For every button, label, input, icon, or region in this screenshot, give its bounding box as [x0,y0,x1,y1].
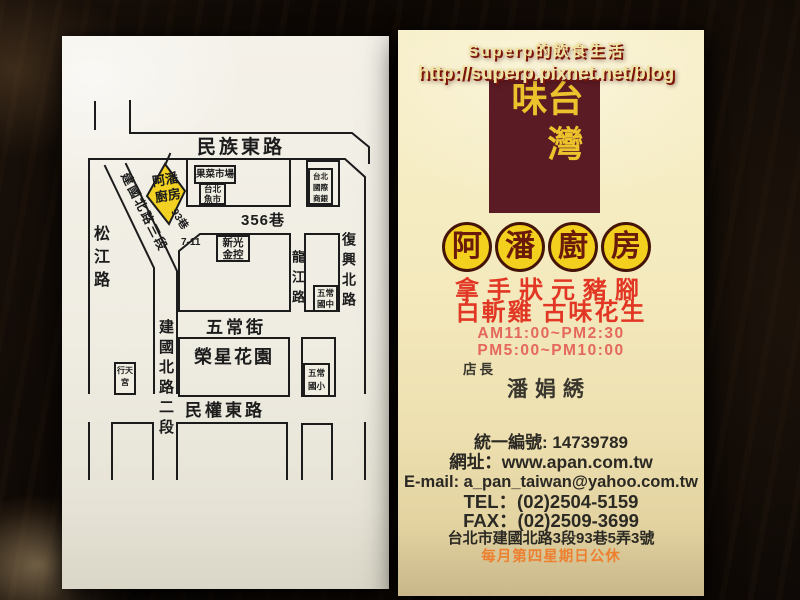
photo-of-business-cards: { "watermark": { "line1": "Superp的飲食生活",… [0,0,800,600]
junior-high-line1: 五常 [314,288,337,299]
shinkong-line2: 金控 [217,249,249,261]
fax: FAX：(02)2509-3699 [463,512,639,531]
temple-line1: 行天 [115,365,135,377]
street-fuxing-n-rd: 復興北路 [342,232,356,312]
fish-market-label: 台北 魚市 [200,185,225,204]
store-name-char4: 房 [611,232,641,262]
shinkong-label: 新光 金控 [217,237,249,261]
store-name-seal-4: 房 [601,222,651,272]
temple-line2: 宮 [115,377,135,389]
junior-high-label: 五常 國中 [314,288,337,310]
tax-id: 統一編號: 14739789 [474,434,628,451]
store-name-char3: 廚 [558,232,588,262]
store-name-seal-2: 潘 [495,222,545,272]
hours-line1: AM11:00~PM2:30 [477,326,624,342]
brand-text-taiwan-flavor: 台灣味 [509,80,581,213]
bank-line2: 國際 [309,182,332,193]
street-minquan-e-rd: 民權東路 [185,402,265,419]
manager-name: 潘娟綉 [507,379,591,400]
map-card: 民族東路 松江路 建國北路三段 建國北路二段 356巷 93巷 龍江路 復興北路… [62,36,389,589]
store-name-seal-1: 阿 [442,222,492,272]
temple-label: 行天 宮 [115,365,135,389]
fish-market-line2: 魚市 [200,195,225,205]
park-label: 榮星花園 [179,348,289,366]
elementary-label: 五常 國小 [304,367,329,393]
hours-line2: PM5:00~PM10:00 [477,343,624,359]
junior-high-line2: 國中 [314,299,337,310]
bank-line3: 商銀 [309,193,332,204]
store-name-char1: 阿 [452,232,482,262]
store-name-seals: 阿 潘 廚 房 [442,222,651,272]
bank-line1: 台北 [309,171,332,182]
store-name-char2: 潘 [505,232,535,262]
bank-label: 台北 國際 商銀 [309,171,332,204]
elementary-line1: 五常 [304,367,329,380]
elementary-line2: 國小 [304,380,329,393]
store-location-label: 阿潘 廚房 [146,169,188,206]
street-longjiang-rd: 龍江路 [291,250,304,310]
seven-eleven-label: 7-11 [181,238,200,248]
closed-note: 每月第四星期日公休 [481,550,621,565]
website: 網址：www.apan.com.tw [449,454,653,472]
brand-block: 台灣味 [489,80,600,213]
street-map-lines [62,36,389,589]
street-wuchang-st: 五常街 [206,319,266,336]
street-songjiang-rd: 松江路 [91,225,107,294]
fruit-market-label: 果菜市場 [195,170,235,180]
manager-label: 店長 [463,363,496,377]
shinkong-line1: 新光 [217,237,249,249]
business-card: 台灣味 阿 潘 廚 房 拿手狀元豬腳 白斬雞 古味花生 AM11:00~PM2:… [398,30,704,596]
street-jianguo-n-rd-sec2: 建國北路二段 [158,319,173,439]
street-lane-356: 356巷 [241,213,285,228]
tel: TEL：(02)2504-5159 [464,493,639,512]
specialty-line2: 白斬雞 古味花生 [456,301,647,325]
email: E-mail: a_pan_taiwan@yahoo.com.tw [404,474,698,491]
address: 台北市建國北路3段93巷5弄3號 [448,531,655,546]
street-minzu-e-rd: 民族東路 [197,138,285,157]
store-name-seal-3: 廚 [548,222,598,272]
